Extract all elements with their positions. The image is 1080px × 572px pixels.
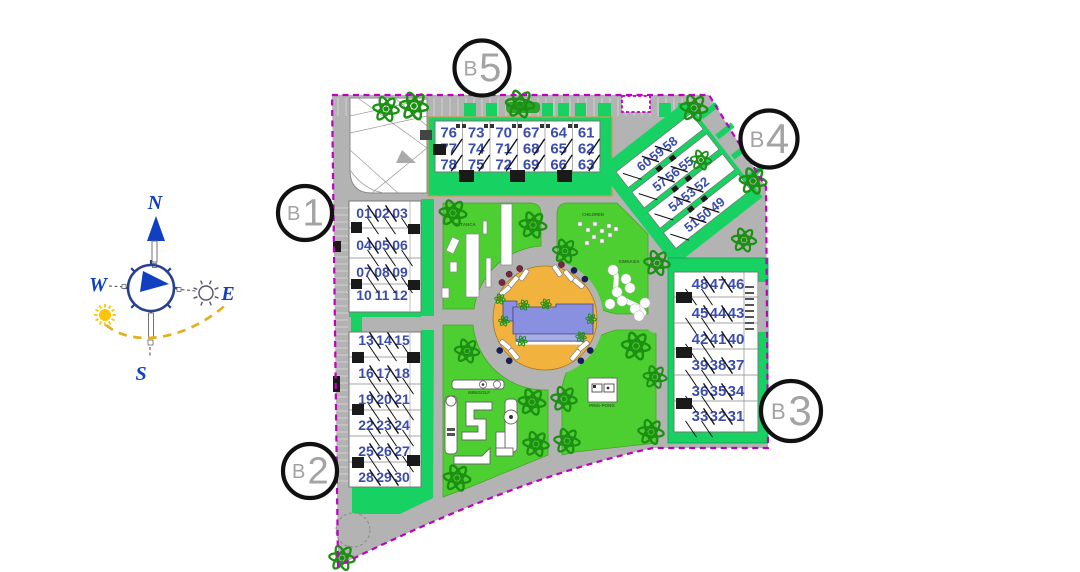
svg-text:11: 11 <box>375 287 390 303</box>
svg-text:B: B <box>292 461 305 483</box>
svg-text:43: 43 <box>728 305 745 322</box>
svg-text:64: 64 <box>550 125 567 142</box>
svg-text:B: B <box>287 203 300 225</box>
svg-text:70: 70 <box>495 125 512 142</box>
svg-text:76: 76 <box>440 125 457 142</box>
svg-text:N: N <box>147 192 164 214</box>
svg-text:42: 42 <box>692 331 709 348</box>
svg-text:5: 5 <box>479 46 501 90</box>
svg-text:46: 46 <box>728 276 745 293</box>
svg-text:31: 31 <box>728 408 745 425</box>
svg-text:4: 4 <box>766 115 789 162</box>
svg-text:47: 47 <box>710 276 727 293</box>
svg-text:B: B <box>463 58 477 81</box>
svg-text:37: 37 <box>728 357 745 374</box>
svg-text:61: 61 <box>578 125 595 142</box>
svg-text:33: 33 <box>692 408 709 425</box>
svg-text:W: W <box>89 274 108 296</box>
svg-text:MINIGOLF: MINIGOLF <box>468 390 490 395</box>
svg-text:S: S <box>135 363 146 385</box>
svg-text:48: 48 <box>692 276 709 293</box>
svg-text:3: 3 <box>788 387 811 434</box>
svg-text:36: 36 <box>692 383 709 400</box>
svg-text:1: 1 <box>303 193 324 235</box>
svg-text:39: 39 <box>692 357 709 374</box>
svg-text:67: 67 <box>523 125 540 142</box>
svg-text:40: 40 <box>728 331 745 348</box>
svg-text:45: 45 <box>692 305 709 322</box>
svg-text:10: 10 <box>356 287 372 303</box>
svg-text:2: 2 <box>308 451 329 493</box>
svg-text:B: B <box>750 127 765 152</box>
svg-text:32: 32 <box>710 408 727 425</box>
svg-text:GIMNASIA: GIMNASIA <box>619 259 640 264</box>
svg-text:73: 73 <box>468 125 485 142</box>
svg-text:E: E <box>220 283 234 305</box>
svg-text:PING-PONG: PING-PONG <box>589 403 615 408</box>
svg-text:12: 12 <box>392 287 408 303</box>
svg-text:CHILDREN: CHILDREN <box>582 212 604 217</box>
svg-text:B: B <box>771 399 786 424</box>
